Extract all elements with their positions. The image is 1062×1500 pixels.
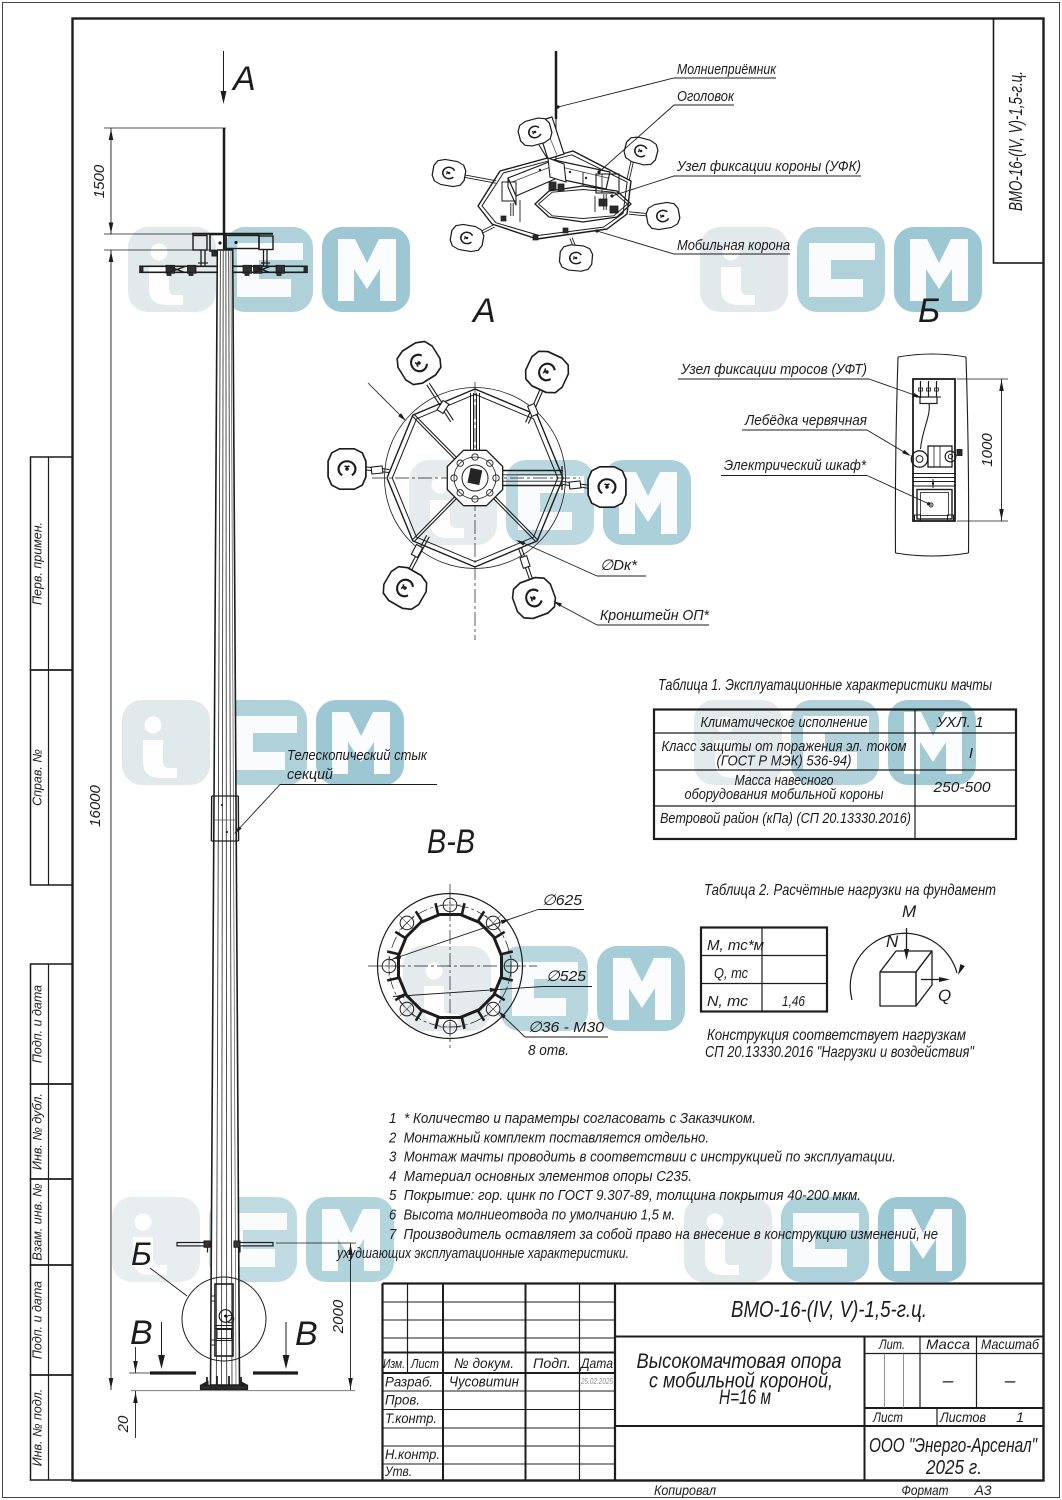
svg-text:В: В — [295, 1315, 318, 1353]
svg-text:Ветровой район (кПа) (СП 20.13: Ветровой район (кПа) (СП 20.13330.2016) — [660, 810, 911, 827]
svg-text:1: 1 — [1016, 1409, 1024, 1425]
svg-text:Масса: Масса — [926, 1336, 970, 1352]
svg-text:Н.контр.: Н.контр. — [385, 1446, 440, 1462]
svg-text:250-500: 250-500 — [932, 779, 991, 796]
svg-text:ухудшающих эксплуатационные ха: ухудшающих эксплуатационные характеристи… — [336, 1246, 629, 1262]
svg-text:Изм.: Изм. — [383, 1356, 405, 1371]
svg-text:Q, тс: Q, тс — [714, 965, 748, 982]
svg-text:секций: секций — [287, 766, 334, 783]
svg-text:Б: Б — [918, 292, 940, 330]
svg-text:20: 20 — [115, 1415, 132, 1433]
svg-text:Пров.: Пров. — [385, 1392, 420, 1408]
svg-text:∅625: ∅625 — [542, 892, 583, 909]
svg-text:№ докум.: № докум. — [454, 1355, 514, 1371]
svg-text:ВМО-16-(IV, V)-1,5-г.ц.: ВМО-16-(IV, V)-1,5-г.ц. — [731, 1296, 927, 1322]
svg-text:2 Монтажный комплект поставля: 2 Монтажный комплект поставляется отдель… — [388, 1130, 709, 1146]
svg-text:Лист: Лист — [410, 1356, 439, 1371]
svg-text:–: – — [1004, 1371, 1016, 1392]
svg-text:Конструкция соответствует нагр: Конструкция соответствует нагрузкам — [707, 1027, 966, 1044]
svg-text:4 Материал основных элементов: 4 Материал основных элементов опоры С235… — [389, 1169, 692, 1185]
svg-text:5 Покрытие: гор. цинк по ГОСТ: 5 Покрытие: гор. цинк по ГОСТ 9.307-89, … — [389, 1188, 861, 1204]
svg-text:Дата: Дата — [579, 1355, 613, 1371]
svg-text:∅525: ∅525 — [546, 968, 587, 985]
svg-text:Подп. и дата: Подп. и дата — [31, 1281, 45, 1359]
svg-text:3 Монтаж мачты проводить в со: 3 Монтаж мачты проводить в соответствии … — [389, 1150, 896, 1166]
svg-text:Оголовок: Оголовок — [677, 88, 735, 105]
svg-text:ООО "Энерго-Арсенал": ООО "Энерго-Арсенал" — [869, 1435, 1038, 1457]
svg-text:Подп.: Подп. — [533, 1355, 571, 1371]
svg-text:Кронштейн ОП*: Кронштейн ОП* — [600, 607, 710, 624]
svg-text:Масштаб: Масштаб — [981, 1336, 1040, 1352]
svg-text:В: В — [130, 1314, 153, 1352]
svg-text:25.02.2025: 25.02.2025 — [580, 1377, 613, 1386]
svg-text:1,46: 1,46 — [782, 993, 806, 1010]
svg-text:Электрический шкаф*: Электрический шкаф* — [724, 457, 867, 474]
svg-text:8 отв.: 8 отв. — [528, 1042, 569, 1059]
svg-text:Лит.: Лит. — [878, 1336, 905, 1352]
svg-text:Чусовитин: Чусовитин — [449, 1375, 519, 1391]
svg-text:Q: Q — [938, 986, 951, 1005]
svg-text:Разраб.: Разраб. — [385, 1374, 433, 1390]
svg-text:Молниеприёмник: Молниеприёмник — [677, 61, 777, 78]
svg-text:Справ. №: Справ. № — [31, 749, 45, 806]
svg-text:Телескопический стык: Телескопический стык — [287, 747, 428, 764]
svg-text:1000: 1000 — [979, 433, 996, 467]
svg-text:Б: Б — [131, 1236, 152, 1272]
svg-text:Формат: Формат — [902, 1482, 949, 1498]
svg-text:Листов: Листов — [939, 1409, 986, 1425]
svg-text:2000: 2000 — [330, 1299, 347, 1334]
svg-text:А3: А3 — [973, 1482, 991, 1498]
svg-text:1 * Количество и параметры со: 1 * Количество и параметры согласовать с… — [389, 1111, 756, 1127]
svg-text:ВМО-16-(IV, V)-1,5-г.ц.: ВМО-16-(IV, V)-1,5-г.ц. — [1006, 71, 1026, 211]
svg-text:Мобильная корона: Мобильная корона — [677, 237, 790, 254]
svg-text:Инв. № дубл.: Инв. № дубл. — [31, 1093, 45, 1170]
svg-text:Взам. инв. №: Взам. инв. № — [31, 1183, 45, 1261]
svg-text:М, тс*м: М, тс*м — [707, 937, 764, 954]
svg-text:Н=16 м: Н=16 м — [719, 1386, 771, 1409]
svg-text:Узел фиксации тросов (УФТ): Узел фиксации тросов (УФТ) — [680, 361, 867, 378]
svg-text:М: М — [902, 902, 917, 921]
svg-text:2025 г.: 2025 г. — [925, 1457, 982, 1479]
svg-text:Узел фиксации короны (УФК): Узел фиксации короны (УФК) — [676, 158, 861, 175]
svg-text:оборудования мобильной короны: оборудования мобильной короны — [685, 786, 884, 803]
svg-text:(ГОСТ Р МЭК) 536-94): (ГОСТ Р МЭК) 536-94) — [717, 753, 852, 770]
svg-text:Подп. и дата: Подп. и дата — [31, 985, 45, 1063]
svg-text:Утв.: Утв. — [384, 1463, 412, 1479]
svg-text:УХЛ. 1: УХЛ. 1 — [935, 714, 983, 731]
svg-text:16000: 16000 — [87, 784, 104, 826]
svg-text:А: А — [231, 60, 256, 98]
svg-text:∅36 - М30: ∅36 - М30 — [528, 1019, 605, 1036]
svg-text:Таблица 2. Расчётные нагрузки: Таблица 2. Расчётные нагрузки на фундаме… — [704, 882, 996, 899]
svg-text:–: – — [942, 1371, 954, 1392]
svg-text:Климатическое исполнение: Климатическое исполнение — [701, 714, 868, 731]
svg-text:Таблица 1. Эксплуатационные ха: Таблица 1. Эксплуатационные характеристи… — [658, 677, 992, 694]
svg-text:N: N — [886, 932, 899, 951]
svg-text:N, тс: N, тс — [707, 993, 749, 1010]
svg-text:В-В: В-В — [427, 823, 475, 861]
svg-text:Т.контр.: Т.контр. — [385, 1410, 437, 1426]
svg-text:Инв. № подл.: Инв. № подл. — [31, 1389, 45, 1467]
svg-text:СП 20.13330.2016 "Нагрузки и в: СП 20.13330.2016 "Нагрузки и воздействия… — [705, 1044, 975, 1061]
svg-text:∅Dк*: ∅Dк* — [600, 557, 638, 574]
svg-text:Перв. примен.: Перв. примен. — [31, 522, 45, 605]
svg-text:7 Производитель оставляет за: 7 Производитель оставляет за собой право… — [389, 1227, 938, 1243]
svg-text:А: А — [471, 292, 496, 330]
svg-text:6 Высота молниеотвода по умол: 6 Высота молниеотвода по умолчанию 1,5 м… — [389, 1208, 675, 1224]
svg-text:I: I — [969, 745, 973, 762]
svg-text:Копировал: Копировал — [654, 1482, 716, 1498]
svg-text:Лебёдка червячная: Лебёдка червячная — [744, 412, 867, 429]
svg-text:1500: 1500 — [91, 164, 108, 198]
svg-text:Лист: Лист — [872, 1409, 903, 1425]
